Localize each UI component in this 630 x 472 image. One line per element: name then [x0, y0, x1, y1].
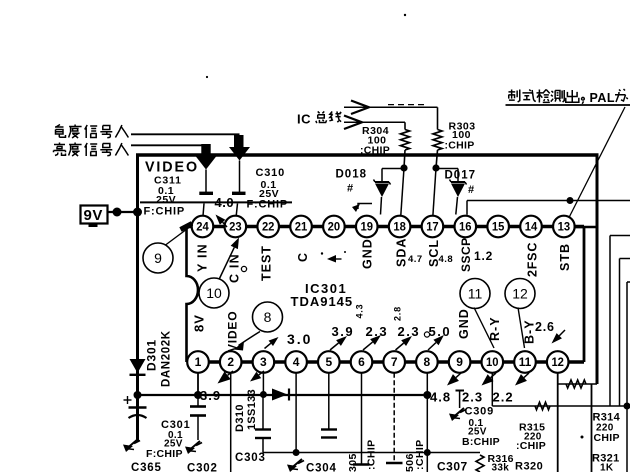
svg-text:4.8: 4.8: [439, 254, 454, 265]
svg-text:12: 12: [512, 286, 528, 302]
svg-text:F:CHIP: F:CHIP: [146, 448, 183, 460]
svg-text:STB: STB: [558, 243, 572, 271]
svg-text:17: 17: [426, 220, 439, 234]
svg-text:9V: 9V: [84, 207, 103, 224]
svg-text:VIDEO: VIDEO: [226, 311, 240, 352]
svg-text:2.8: 2.8: [393, 306, 403, 321]
svg-text:#: #: [347, 183, 354, 195]
svg-text::CHIP: :CHIP: [516, 440, 546, 452]
svg-text:8: 8: [264, 309, 272, 325]
svg-text:6: 6: [358, 355, 365, 369]
svg-text:4.3: 4.3: [355, 304, 365, 319]
svg-text:D301: D301: [145, 339, 159, 371]
svg-text:19: 19: [361, 220, 374, 234]
svg-text:IC: IC: [297, 112, 311, 127]
svg-text:GND: GND: [361, 238, 375, 269]
svg-text:16: 16: [459, 220, 472, 234]
svg-text:SDA: SDA: [395, 238, 409, 267]
svg-text:4: 4: [293, 355, 300, 369]
svg-text:13: 13: [558, 220, 571, 234]
svg-text:9: 9: [456, 355, 463, 369]
svg-text:C307: C307: [437, 460, 468, 472]
svg-text::CHIP: :CHIP: [360, 145, 390, 157]
svg-text:18: 18: [393, 220, 406, 234]
svg-text:305: 305: [347, 453, 359, 472]
svg-text:C365: C365: [131, 462, 162, 472]
svg-text:D310: D310: [234, 404, 246, 432]
svg-text:25V: 25V: [156, 194, 176, 206]
svg-text:5: 5: [325, 355, 332, 369]
svg-text:14: 14: [525, 220, 538, 234]
svg-text:20: 20: [328, 220, 341, 234]
svg-text:2.3: 2.3: [462, 390, 483, 405]
svg-text:1.2: 1.2: [474, 249, 493, 263]
svg-text::CHIP: :CHIP: [414, 439, 426, 470]
svg-text:33k: 33k: [492, 463, 510, 472]
svg-text:1: 1: [195, 355, 202, 369]
svg-text:11: 11: [519, 355, 532, 369]
svg-text:VIDEO: VIDEO: [145, 159, 199, 176]
svg-text:PAL: PAL: [590, 91, 616, 105]
svg-text:#: #: [468, 184, 475, 196]
svg-text:CHIP: CHIP: [594, 432, 620, 444]
svg-text::CHIP: :CHIP: [445, 140, 475, 152]
svg-text:C304: C304: [306, 463, 337, 472]
svg-text:8V: 8V: [192, 314, 207, 332]
svg-text:B:CHIP: B:CHIP: [462, 436, 500, 448]
svg-text:Y IN: Y IN: [196, 243, 210, 272]
svg-text:C303: C303: [235, 452, 266, 464]
svg-text:3.9: 3.9: [200, 388, 221, 403]
svg-text:2.3: 2.3: [398, 324, 421, 339]
svg-text:21: 21: [295, 220, 308, 234]
svg-text:F:CHIP: F:CHIP: [144, 206, 185, 218]
svg-text:5.0: 5.0: [429, 324, 452, 339]
svg-text:23: 23: [229, 220, 242, 234]
svg-text:DAN202K: DAN202K: [161, 330, 173, 387]
svg-text:F:CHIP: F:CHIP: [247, 199, 288, 211]
svg-text:D018: D018: [336, 169, 368, 181]
svg-text:12: 12: [551, 355, 564, 369]
svg-text:10: 10: [206, 285, 222, 301]
svg-text:3.0: 3.0: [287, 331, 312, 347]
svg-text:1K: 1K: [600, 463, 614, 472]
svg-text:C: C: [296, 252, 310, 262]
svg-text:24: 24: [196, 220, 209, 234]
svg-text:4.8: 4.8: [430, 390, 451, 405]
svg-text:SSCP: SSCP: [459, 237, 473, 272]
svg-text:3: 3: [260, 355, 267, 369]
svg-text:C309: C309: [465, 406, 495, 418]
svg-text:9: 9: [154, 250, 162, 266]
svg-text:R-Y: R-Y: [488, 316, 502, 341]
svg-text:2.2: 2.2: [493, 390, 514, 405]
svg-text:C IN: C IN: [228, 253, 242, 283]
svg-text:4.0: 4.0: [215, 195, 235, 210]
svg-text:TEST: TEST: [260, 245, 274, 281]
svg-text:11: 11: [468, 286, 483, 302]
svg-text:1SS133: 1SS133: [246, 389, 258, 430]
svg-text:TDA9145: TDA9145: [291, 294, 354, 309]
svg-text:10: 10: [486, 355, 499, 369]
svg-text:C310: C310: [256, 167, 286, 179]
svg-text:3.9: 3.9: [332, 324, 355, 339]
svg-text:C302: C302: [187, 463, 218, 472]
svg-text:R320: R320: [515, 461, 543, 472]
svg-text:8: 8: [424, 355, 431, 369]
svg-text:7: 7: [391, 355, 398, 369]
svg-text:4.7: 4.7: [408, 254, 423, 265]
svg-text:2FSC: 2FSC: [526, 242, 540, 277]
svg-text:15: 15: [492, 220, 505, 234]
svg-text:2.6: 2.6: [535, 320, 555, 334]
svg-text:GND: GND: [457, 308, 471, 339]
svg-text:22: 22: [262, 220, 275, 234]
svg-text:2: 2: [227, 355, 234, 369]
